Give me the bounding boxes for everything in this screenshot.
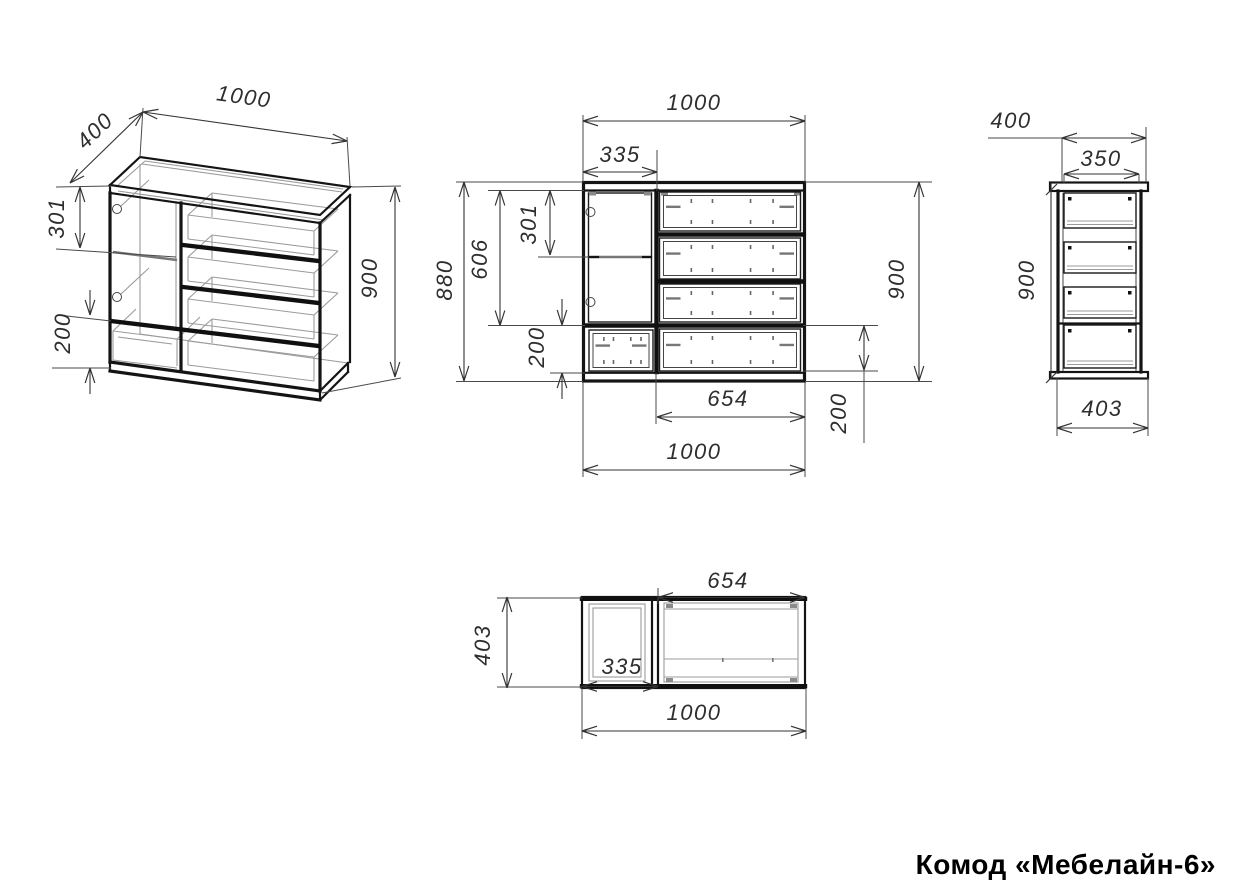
iso-hinge — [113, 205, 122, 214]
isometric-view: 400 1000 301 200 900 — [44, 80, 401, 400]
dim-iso-depth: 400 — [71, 107, 118, 154]
side-view: 400 350 900 403 — [988, 108, 1148, 436]
drawer-side-profile — [1064, 193, 1136, 228]
dim-front-door-w: 335 — [599, 142, 640, 167]
iso-hinge — [113, 293, 122, 302]
dim-front-h-total: 880 — [432, 259, 457, 300]
dim-top-depth: 403 — [470, 624, 495, 665]
drawing-canvas: 400 1000 301 200 900 — [0, 0, 1260, 892]
iso-wireframe — [113, 161, 348, 381]
front-view: 1000 335 880 606 301 200 900 200 654 100… — [432, 90, 932, 477]
dim-front-width-bottom: 1000 — [667, 439, 722, 464]
dim-side-height: 900 — [1014, 259, 1039, 300]
side-plinth — [1050, 372, 1148, 379]
dim-front-drawer-h-right: 200 — [826, 392, 851, 434]
side-top-panel — [1050, 183, 1148, 192]
blueprint-page: 400 1000 301 200 900 — [0, 0, 1260, 892]
front-hinge — [586, 208, 595, 217]
dim-iso-door-h: 301 — [44, 197, 69, 238]
dim-top-drawers-w: 654 — [707, 568, 748, 593]
drawer-front — [589, 330, 653, 371]
drawer-front — [660, 238, 801, 279]
dim-front-drawers-w: 654 — [707, 386, 748, 411]
dim-front-height: 900 — [884, 258, 909, 299]
iso-drawer-box — [188, 193, 338, 255]
front-hinge — [586, 298, 595, 307]
iso-drawer-box — [188, 277, 338, 339]
dim-side-depth-bottom: 403 — [1081, 396, 1122, 421]
iso-drawer-box — [188, 319, 338, 381]
dim-front-h-inner: 606 — [467, 238, 492, 279]
dim-top-door-w: 335 — [601, 654, 642, 679]
iso-drawer-separator — [111, 321, 319, 346]
dim-front-door-h: 301 — [516, 203, 541, 244]
dim-side-depth-top: 350 — [1080, 146, 1121, 171]
top-view: 654 403 335 1000 — [470, 568, 806, 739]
drawer-front — [660, 284, 801, 322]
drawer-side-profile — [1064, 242, 1136, 273]
dim-iso-width: 1000 — [215, 80, 273, 112]
iso-drawer-box — [188, 235, 338, 297]
drawer-side-profile — [1064, 325, 1136, 368]
side-drawers — [1064, 193, 1136, 368]
drawer-side-profile — [1064, 287, 1136, 318]
drawer-front — [660, 192, 801, 231]
dim-iso-height: 900 — [357, 257, 382, 298]
dim-front-drawer-h-left: 200 — [524, 326, 549, 368]
dim-side-depth: 400 — [990, 108, 1031, 133]
dim-front-width: 1000 — [667, 90, 722, 115]
drawing-title: Комод «Мебелайн-6» — [916, 849, 1216, 881]
dim-top-width: 1000 — [667, 700, 722, 725]
drawer-front — [660, 329, 801, 371]
dim-iso-drawer-h: 200 — [50, 312, 75, 354]
